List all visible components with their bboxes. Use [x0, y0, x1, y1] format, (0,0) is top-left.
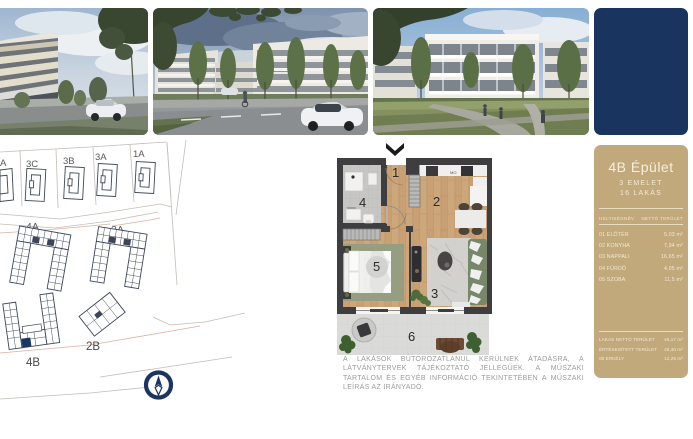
svg-text:2: 2 — [433, 194, 440, 209]
svg-text:1A: 1A — [133, 149, 145, 160]
svg-text:2B: 2B — [86, 341, 100, 353]
svg-text:4: 4 — [359, 195, 366, 210]
svg-text:5: 5 — [373, 259, 380, 274]
svg-text:6: 6 — [408, 329, 415, 344]
svg-text:3B: 3B — [63, 156, 75, 167]
svg-text:1: 1 — [392, 165, 399, 180]
svg-text:A: A — [0, 158, 7, 169]
svg-text:3A: 3A — [95, 152, 107, 163]
svg-text:MO: MO — [450, 170, 456, 175]
svg-text:3: 3 — [431, 286, 438, 301]
svg-text:4B: 4B — [26, 357, 40, 369]
